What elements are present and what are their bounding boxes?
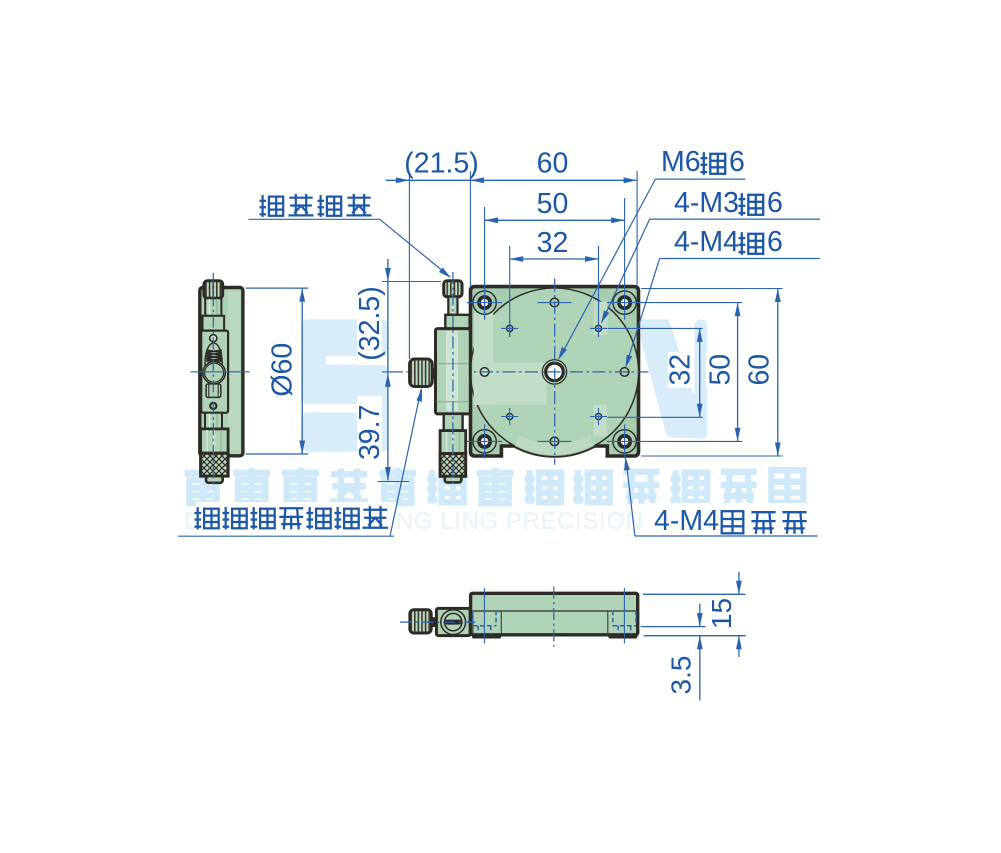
svg-text:39.7: 39.7 [354, 405, 386, 460]
svg-text:50: 50 [537, 188, 569, 220]
svg-text:32: 32 [665, 354, 697, 386]
svg-text:M6: M6 [661, 146, 701, 178]
svg-text:6: 6 [767, 226, 783, 258]
svg-text:3.5: 3.5 [666, 656, 697, 695]
svg-text:60: 60 [744, 354, 776, 386]
svg-text:Ø60: Ø60 [267, 343, 299, 397]
svg-text:4-M4: 4-M4 [674, 226, 739, 258]
svg-text:(21.5): (21.5) [404, 148, 478, 180]
svg-text:4-M3: 4-M3 [674, 187, 739, 219]
svg-text:6: 6 [729, 146, 745, 178]
svg-text:60: 60 [537, 148, 569, 180]
svg-text:6: 6 [767, 187, 783, 219]
svg-text:50: 50 [705, 354, 737, 386]
svg-text:15: 15 [706, 598, 737, 629]
svg-text:32: 32 [537, 227, 569, 259]
svg-text:(32.5): (32.5) [354, 286, 386, 360]
svg-text:4-M4: 4-M4 [654, 505, 719, 537]
